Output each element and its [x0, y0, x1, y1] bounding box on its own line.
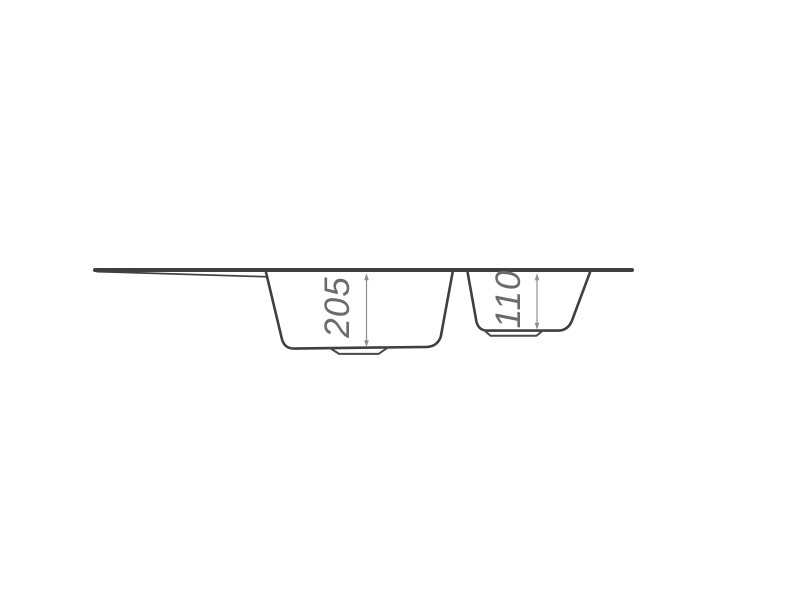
dimension-arrow-down-icon	[364, 340, 369, 347]
main-bowl-outline	[266, 272, 453, 348]
dimension-arrow-down-icon	[535, 323, 540, 330]
drawing-canvas: 205 110	[0, 0, 800, 600]
dimension-arrow-up-icon	[535, 273, 540, 280]
dimension-arrow-up-icon	[364, 273, 369, 280]
secondary-bowl-depth-label: 110	[489, 270, 528, 329]
main-bowl-dimension: 205	[318, 273, 369, 347]
secondary-bowl-outline	[468, 272, 590, 330]
main-bowl-depth-label: 205	[318, 276, 357, 338]
drainboard-slope-line	[97, 272, 268, 277]
secondary-bowl-dimension: 110	[489, 270, 539, 330]
sink-cross-section-diagram: 205 110	[0, 0, 800, 600]
